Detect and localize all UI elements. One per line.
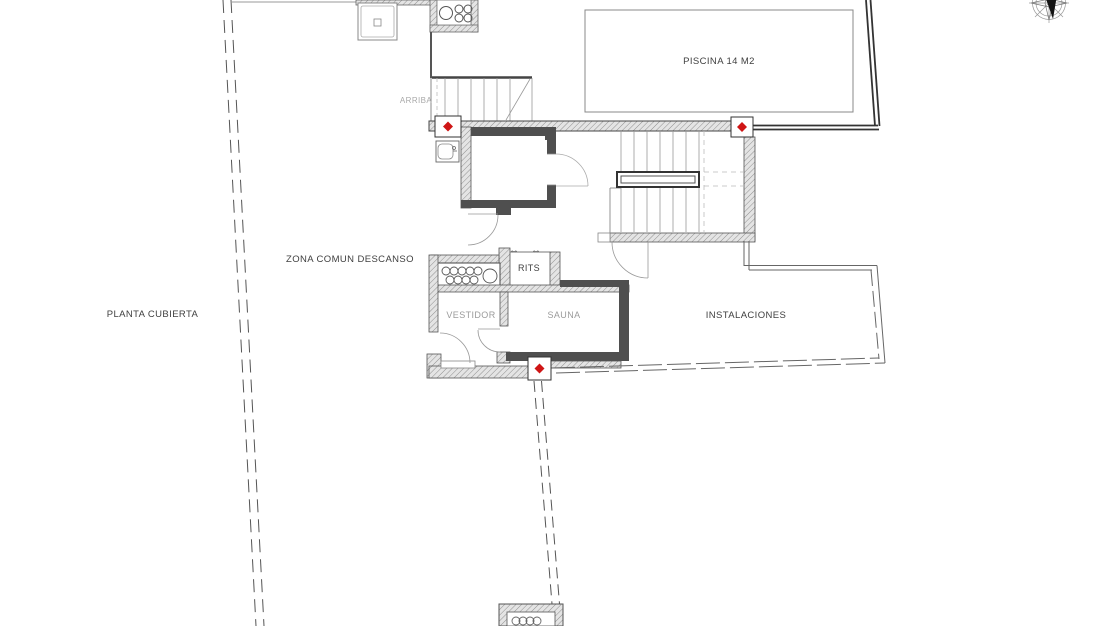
vent-arrow-icon: ↔ [531,246,541,256]
bottom-structure [499,604,563,626]
room-label-zona-comun: ZONA COMUN DESCANSO [270,254,430,265]
column-marker [528,357,551,380]
room-label-rits: RITS [509,263,549,273]
roof-edge-top [231,0,433,5]
column-marker [731,117,753,137]
stairs-up-annotation: ARRIBA [395,96,437,105]
vent-arrow-icon: ↔ [509,246,519,256]
stairs-arriba [432,78,532,122]
site-boundary-right [866,0,880,126]
floor-plan-canvas: PISCINA 14 M2 ZONA COMUN DESCANSO PLANTA… [0,0,1110,626]
compass-icon [1029,0,1069,23]
washbasin-unit-top [430,0,478,32]
boundary-path-lower [534,381,560,604]
room-label-piscina: PISCINA 14 M2 [585,10,853,112]
floor-title: PLANTA CUBIERTA [75,309,230,320]
elevator-shaft [461,127,588,245]
room-label-sauna: SAUNA [533,310,595,320]
room-label-vestidor: VESTIDOR [440,310,502,320]
shower-tray [358,3,397,40]
stairwell-main [598,131,755,278]
column-marker [435,116,461,137]
room-label-instalaciones: INSTALACIONES [676,310,816,321]
sink-fixture [436,141,459,162]
